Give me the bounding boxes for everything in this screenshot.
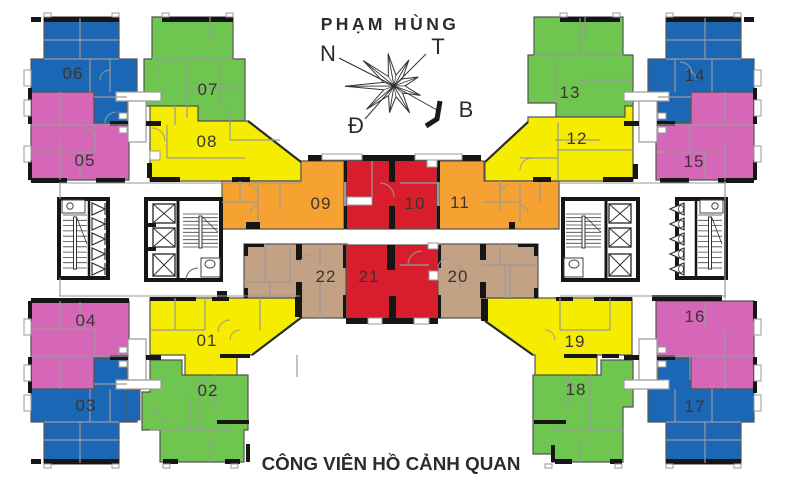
svg-text:20: 20 — [448, 267, 469, 286]
svg-text:07: 07 — [198, 80, 219, 99]
svg-text:08: 08 — [197, 132, 218, 151]
svg-text:15: 15 — [684, 152, 705, 171]
svg-text:01: 01 — [197, 331, 218, 350]
svg-text:14: 14 — [685, 66, 706, 85]
svg-text:03: 03 — [76, 396, 97, 415]
svg-text:16: 16 — [685, 307, 706, 326]
svg-text:17: 17 — [685, 397, 706, 416]
svg-text:10: 10 — [405, 194, 426, 213]
svg-text:21: 21 — [359, 267, 380, 286]
svg-text:22: 22 — [316, 267, 337, 286]
svg-text:02: 02 — [198, 381, 219, 400]
svg-text:11: 11 — [450, 193, 470, 212]
svg-text:04: 04 — [76, 311, 97, 330]
svg-text:CÔNG VIÊN HỒ CẢNH QUAN: CÔNG VIÊN HỒ CẢNH QUAN — [262, 453, 521, 474]
svg-text:09: 09 — [311, 194, 332, 213]
svg-text:13: 13 — [560, 83, 581, 102]
svg-text:18: 18 — [566, 380, 587, 399]
svg-text:T: T — [431, 34, 444, 59]
svg-text:19: 19 — [565, 332, 586, 351]
svg-text:05: 05 — [75, 151, 96, 170]
svg-text:06: 06 — [63, 64, 84, 83]
svg-text:Đ: Đ — [348, 113, 364, 138]
svg-text:12: 12 — [567, 129, 588, 148]
svg-text:B: B — [459, 97, 474, 122]
svg-text:N: N — [320, 41, 336, 66]
svg-text:PHẠM HÙNG: PHẠM HÙNG — [321, 13, 460, 34]
